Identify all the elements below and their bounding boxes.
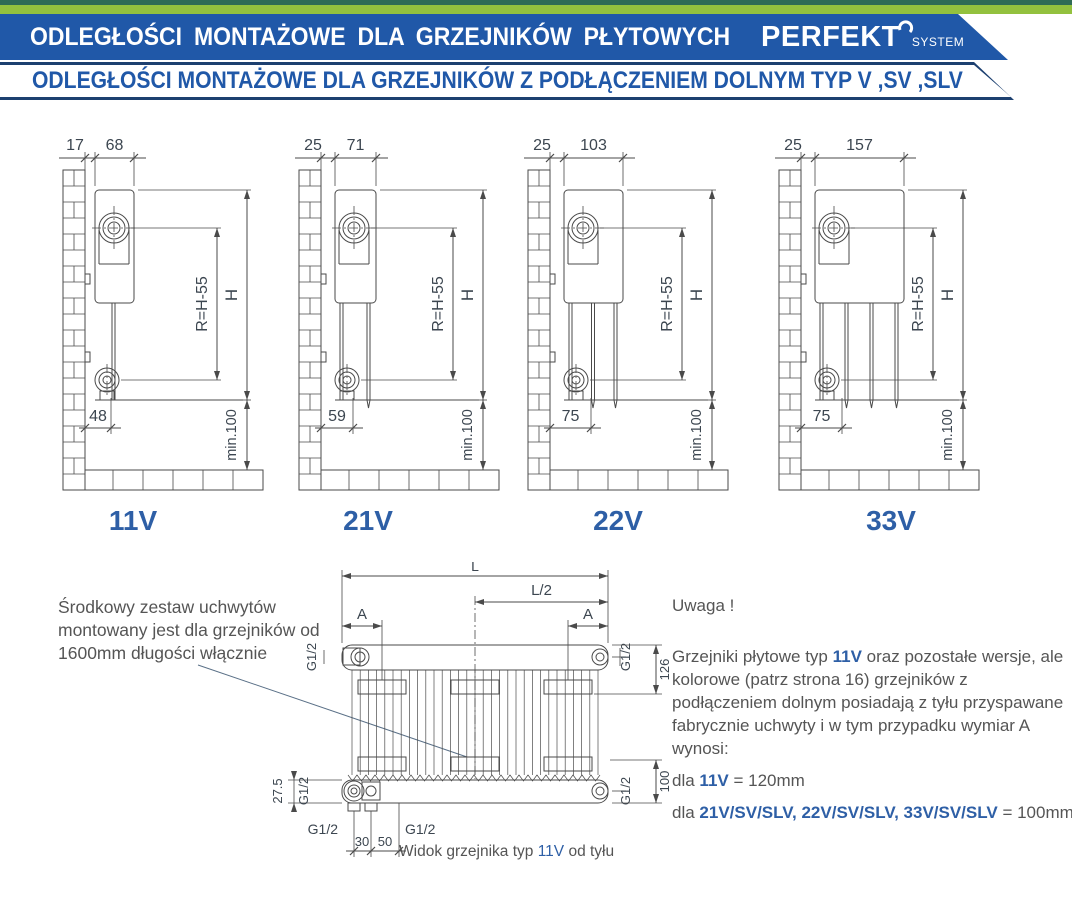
dla2-value: = 100mm xyxy=(998,803,1072,822)
dim-depth: 68 xyxy=(106,137,124,154)
spec-line-11v: dla 11V = 120mm xyxy=(672,769,1072,792)
side-diagram-11v: 1768R=H-55Hmin.10048 xyxy=(35,128,285,493)
dim-height-label: H xyxy=(222,289,241,301)
dim-floor-clearance: min.100 xyxy=(460,409,476,461)
side-diagram-33v: 25157R=H-55Hmin.10075 xyxy=(751,128,1001,493)
dim-depth: 71 xyxy=(347,137,365,154)
dla1-accent: 11V xyxy=(699,771,728,790)
top-green-strip xyxy=(0,5,1072,14)
dim-floor-clearance: min.100 xyxy=(224,409,240,461)
dim-radius-label: R=H-55 xyxy=(910,276,927,332)
dim-floor-clearance: min.100 xyxy=(689,409,705,461)
uwaga-p1-accent: 11V xyxy=(833,647,862,666)
rear-view-caption: Widok grzejnika typ 11V od tyłu xyxy=(399,843,614,861)
side-diagram-22v: 25103R=H-55Hmin.10075 xyxy=(500,128,750,493)
diagram-column-33v: 25157R=H-55Hmin.10075 33V xyxy=(751,128,1001,548)
caption-prefix: Widok grzejnika typ xyxy=(399,843,538,860)
dim-radius-label: R=H-55 xyxy=(659,276,676,332)
diagram-type-label-21v: 21V xyxy=(243,505,493,537)
subtitle-banner-inner: ODLEGŁOŚCI MONTAŻOWE DLA GRZEJNIKÓW Z PO… xyxy=(0,65,1011,97)
dim-100: 100 xyxy=(657,771,672,793)
dim-a-left: A xyxy=(357,606,367,623)
dim-height-label: H xyxy=(687,289,706,301)
dim-pipe-offset: 48 xyxy=(89,408,107,425)
dim-50: 50 xyxy=(378,834,392,849)
spec-line-others: dla 21V/SV/SLV, 22V/SV/SLV, 33V/SV/SLV =… xyxy=(672,801,1072,824)
diagram-type-label-33v: 33V xyxy=(766,505,1016,537)
dim-floor-clearance: min.100 xyxy=(940,409,956,461)
dim-height-label: H xyxy=(458,289,477,301)
brand-system-label: SYSTEM xyxy=(912,35,964,49)
dim-half-length: L/2 xyxy=(531,582,552,599)
uwaga-p1: Grzejniki płytowe typ xyxy=(672,647,833,666)
subtitle-text: ODLEGŁOŚCI MONTAŻOWE DLA GRZEJNIKÓW Z PO… xyxy=(32,67,963,95)
dim-27-5: 27.5 xyxy=(272,778,285,803)
dim-height-label: H xyxy=(938,289,957,301)
diagram-type-label-11v: 11V xyxy=(8,505,258,537)
dim-30: 30 xyxy=(355,834,369,849)
dimension-lines: 1768R=H-55Hmin.10048 xyxy=(59,137,251,470)
dim-length: L xyxy=(471,562,479,574)
diagram-column-22v: 25103R=H-55Hmin.10075 22V xyxy=(500,128,750,548)
header-banner: ODLEGŁOŚCI MONTAŻOWE DLA GRZEJNIKÓW PŁYT… xyxy=(0,14,1008,60)
dim-pipe-offset: 75 xyxy=(562,408,580,425)
dla1-prefix: dla xyxy=(672,771,699,790)
caption-type: 11V xyxy=(538,843,564,860)
dim-depth: 157 xyxy=(846,137,873,154)
brand-logo: PERFEKT SYSTEM xyxy=(761,21,964,54)
dim-thread-top-left: G1/2 xyxy=(304,643,319,671)
radiator-body xyxy=(801,190,959,408)
thread-label-bottom-left: G1/2 xyxy=(308,821,339,837)
dim-pipe-offset: 59 xyxy=(328,408,346,425)
uwaga-paragraph: Grzejniki płytowe typ 11V oraz pozostałe… xyxy=(672,645,1072,760)
dim-thread-bottom-right: G1/2 xyxy=(618,777,633,805)
dim-radius-label: R=H-55 xyxy=(430,276,447,332)
dim-wall-gap: 17 xyxy=(66,137,84,154)
side-diagram-21v: 2571R=H-55Hmin.10059 xyxy=(271,128,521,493)
thread-label-bottom-right: G1/2 xyxy=(405,821,436,837)
dla1-value: = 120mm xyxy=(729,771,805,790)
dim-radius-label: R=H-55 xyxy=(194,276,211,332)
page-title: ODLEGŁOŚCI MONTAŻOWE DLA GRZEJNIKÓW PŁYT… xyxy=(30,23,730,52)
dim-wall-gap: 25 xyxy=(533,137,551,154)
radiator-body xyxy=(550,190,708,408)
dla2-accent: 21V/SV/SLV, 22V/SV/SLV, 33V/SV/SLV xyxy=(699,803,997,822)
dim-thread-bottom-left-rot: G1/2 xyxy=(296,777,311,805)
dla2-prefix: dla xyxy=(672,803,699,822)
dimension-lines: 2571R=H-55Hmin.10059 xyxy=(295,137,487,470)
dim-a-right: A xyxy=(583,606,593,623)
rear-dimensions: LL/2AAG1/2126G1/2100G1/227.5G1/23050G1/2… xyxy=(272,562,672,857)
radiator-body xyxy=(85,190,243,400)
diagram-column-21v: 2571R=H-55Hmin.10059 21V xyxy=(271,128,521,548)
diagram-type-label-22v: 22V xyxy=(493,505,743,537)
uwaga-title: Uwaga ! xyxy=(672,594,1072,617)
radiator-body xyxy=(321,190,479,408)
dim-thread-top-right: G1/2 xyxy=(618,643,633,671)
diagram-column-11v: 1768R=H-55Hmin.10048 11V xyxy=(35,128,285,548)
uwaga-block: Uwaga ! Grzejniki płytowe typ 11V oraz p… xyxy=(672,594,1072,824)
brand-hook-icon xyxy=(898,17,914,42)
subtitle-banner: ODLEGŁOŚCI MONTAŻOWE DLA GRZEJNIKÓW Z PO… xyxy=(0,62,1014,100)
dim-depth: 103 xyxy=(580,137,607,154)
dim-pipe-offset: 75 xyxy=(813,408,831,425)
caption-suffix: od tyłu xyxy=(564,843,614,860)
dim-126: 126 xyxy=(657,659,672,681)
brand-name: PERFEKT xyxy=(761,21,900,54)
dimension-lines: 25103R=H-55Hmin.10075 xyxy=(524,137,716,470)
dim-wall-gap: 25 xyxy=(784,137,802,154)
rear-view-drawing: LL/2AAG1/2126G1/2100G1/227.5G1/23050G1/2… xyxy=(272,562,684,877)
page: { "header": { "title": "ODLEGŁOŚCI MONTA… xyxy=(0,0,1072,898)
dim-wall-gap: 25 xyxy=(304,137,322,154)
